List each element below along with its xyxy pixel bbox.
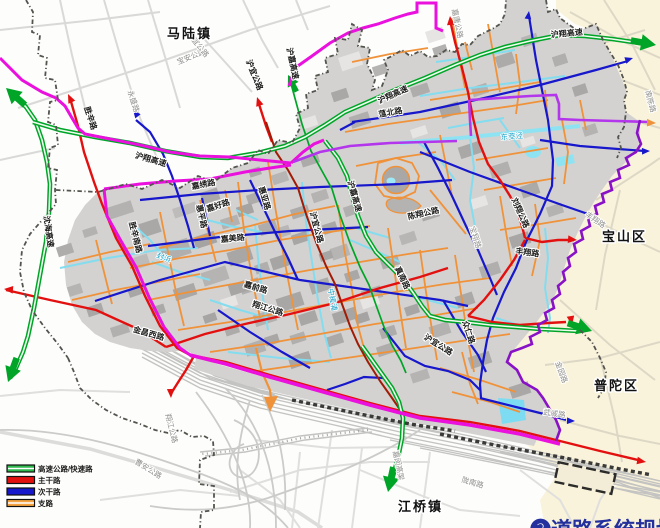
svg-text:江桥镇: 江桥镇 — [398, 499, 443, 514]
svg-text:高速公路/快速路: 高速公路/快速路 — [38, 464, 93, 474]
svg-text:主干路: 主干路 — [38, 475, 61, 485]
svg-text:普陀区: 普陀区 — [594, 378, 639, 393]
svg-text:次干路: 次干路 — [38, 487, 61, 497]
svg-text:东茭泾: 东茭泾 — [500, 130, 524, 142]
svg-text:宝山区: 宝山区 — [602, 229, 647, 244]
svg-text:❷道路系统规划图: ❷道路系统规划图 — [530, 518, 660, 528]
svg-text:支路: 支路 — [37, 498, 53, 508]
svg-text:马陆镇: 马陆镇 — [167, 26, 212, 41]
